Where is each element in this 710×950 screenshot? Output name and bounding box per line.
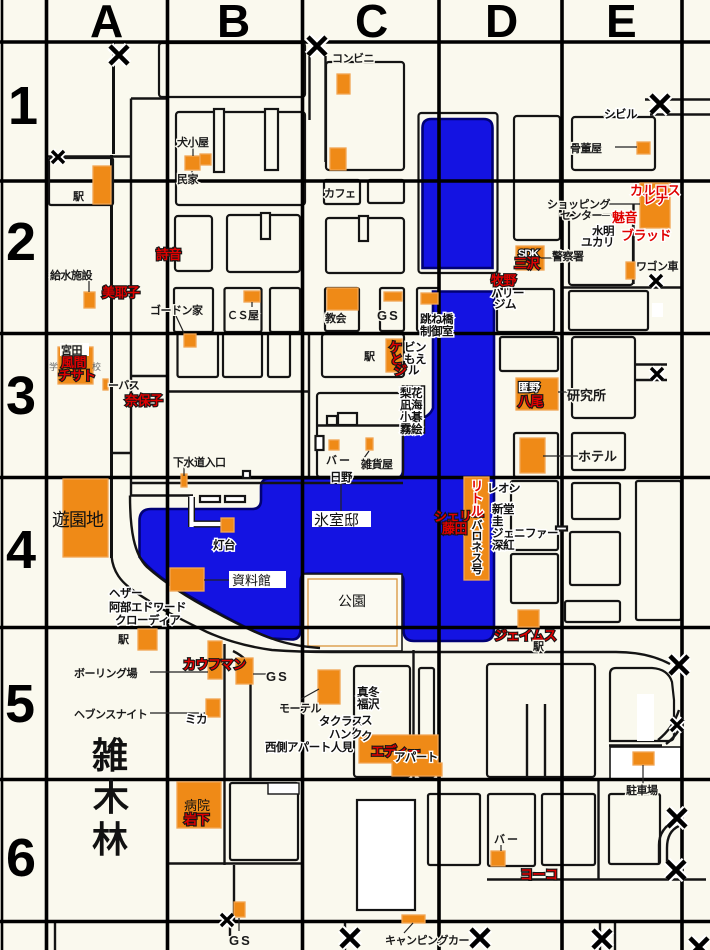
svg-text:雑: 雑 <box>91 735 128 776</box>
svg-text:ジェイムス: ジェイムス <box>494 628 557 643</box>
svg-text:研究所: 研究所 <box>567 388 606 403</box>
svg-text:GS: GS <box>266 669 289 684</box>
svg-text:小碁: 小碁 <box>399 410 423 424</box>
svg-text:日野: 日野 <box>330 471 353 484</box>
svg-text:藤田: 藤田 <box>442 521 468 536</box>
svg-text:教会: 教会 <box>324 311 347 325</box>
svg-text:ハンク: ハンク <box>329 728 362 741</box>
svg-text:凪海: 凪海 <box>400 398 423 412</box>
svg-text:病院: 病院 <box>184 798 210 813</box>
svg-text:深紅: 深紅 <box>492 538 515 552</box>
svg-text:木: 木 <box>93 777 129 818</box>
svg-text:遊園地: 遊園地 <box>52 510 104 530</box>
svg-text:雑貨屋: 雑貨屋 <box>360 457 393 471</box>
svg-text:制御室: 制御室 <box>420 324 454 338</box>
svg-text:八尾: 八尾 <box>517 394 544 409</box>
svg-text:駅: 駅 <box>363 350 375 363</box>
svg-text:林: 林 <box>92 819 128 860</box>
svg-text:灯台: 灯台 <box>213 538 235 552</box>
svg-text:詩音: 詩音 <box>156 247 182 262</box>
svg-text:バロネス号: バロネス号 <box>470 519 483 575</box>
svg-text:駅: 駅 <box>117 633 129 646</box>
svg-text:ホテル: ホテル <box>578 449 617 464</box>
svg-text:B: B <box>217 0 250 47</box>
svg-text:キャンピングカー: キャンピングカー <box>385 933 469 947</box>
svg-text:チサト: チサト <box>58 368 96 383</box>
svg-text:警察署: 警察署 <box>551 249 584 263</box>
svg-text:E: E <box>606 0 637 47</box>
svg-text:霧絵: 霧絵 <box>400 422 423 436</box>
svg-text:下水道入口: 下水道入口 <box>173 455 226 469</box>
svg-text:学: 学 <box>49 361 58 372</box>
svg-text:阿部エドワード: 阿部エドワード <box>109 600 186 614</box>
svg-text:GS: GS <box>377 308 400 323</box>
svg-text:ユカリ: ユカリ <box>581 236 614 249</box>
svg-text:アパート: アパート <box>394 751 438 764</box>
svg-text:骨董屋: 骨董屋 <box>570 141 602 155</box>
svg-text:ボーリング場: ボーリング場 <box>74 666 137 680</box>
svg-text:モーテル: モーテル <box>279 702 321 715</box>
svg-text:クローディア: クローディア <box>115 613 181 627</box>
svg-text:4: 4 <box>6 520 36 580</box>
svg-text:バ ー: バ ー <box>494 833 518 846</box>
svg-text:駅: 駅 <box>72 190 84 203</box>
svg-text:ＣＳ屋: ＣＳ屋 <box>227 309 259 322</box>
svg-text:1: 1 <box>8 76 38 136</box>
svg-text:氷室邸: 氷室邸 <box>314 512 359 529</box>
svg-text:ジェニファー: ジェニファー <box>492 527 558 540</box>
svg-text:6: 6 <box>6 828 36 888</box>
svg-text:ヘザー: ヘザー <box>109 587 142 600</box>
svg-text:レナ: レナ <box>643 192 669 207</box>
svg-text:ル: ル <box>408 364 420 377</box>
svg-text:圭: 圭 <box>492 514 504 528</box>
svg-text:3: 3 <box>6 366 36 426</box>
svg-text:センター─: センター─ <box>560 209 610 222</box>
svg-text:2: 2 <box>6 212 36 272</box>
svg-text:ーバス: ーバス <box>108 379 140 392</box>
svg-text:レオン: レオン <box>487 482 520 495</box>
svg-text:跳ね橋: 跳ね橋 <box>420 312 454 326</box>
svg-text:5: 5 <box>5 674 35 734</box>
svg-text:ク: ク <box>361 730 372 743</box>
svg-text:資料館: 資料館 <box>232 573 271 588</box>
svg-text:シビル: シビル <box>604 107 638 121</box>
svg-text:カウフマン: カウフマン <box>183 657 246 672</box>
svg-text:GS: GS <box>229 933 252 948</box>
svg-text:ヘブンスナイト: ヘブンスナイト <box>74 707 147 721</box>
svg-text:西側アパート人見: 西側アパート人見 <box>265 740 354 754</box>
svg-text:ミカ: ミカ <box>185 713 207 726</box>
svg-text:牧野: 牧野 <box>491 273 517 288</box>
svg-text:公園: 公園 <box>338 593 366 609</box>
svg-text:奈保子: 奈保子 <box>124 393 163 408</box>
svg-text:民家: 民家 <box>177 172 199 186</box>
svg-text:ジム: ジム <box>494 298 517 311</box>
svg-text:ブラッド: ブラッド <box>621 228 671 243</box>
svg-text:水明: 水明 <box>592 224 614 238</box>
svg-text:犬小屋: 犬小屋 <box>177 135 209 149</box>
svg-text:匿野: 匿野 <box>518 381 540 394</box>
svg-text:ショッピング: ショッピング <box>547 197 610 211</box>
svg-text:ワゴン車: ワゴン車 <box>636 259 678 273</box>
svg-text:バ ー: バ ー <box>326 454 350 467</box>
svg-text:ス: ス <box>361 715 372 727</box>
svg-text:ヨーコ: ヨーコ <box>520 867 558 882</box>
svg-text:C: C <box>355 0 388 47</box>
svg-text:タクラス: タクラス <box>319 714 363 728</box>
svg-text:コンビニ: コンビニ <box>332 51 374 65</box>
svg-text:給水施設: 給水施設 <box>50 268 93 282</box>
svg-text:美耶子: 美耶子 <box>102 285 140 300</box>
svg-text:岩下: 岩下 <box>183 812 210 827</box>
svg-text:梨花: 梨花 <box>399 386 423 400</box>
svg-text:新堂: 新堂 <box>492 502 514 516</box>
svg-text:D: D <box>485 0 518 47</box>
svg-text:A: A <box>90 0 123 47</box>
svg-text:駅: 駅 <box>532 640 544 653</box>
svg-text:三沢: 三沢 <box>514 256 541 271</box>
svg-text:真冬: 真冬 <box>357 685 380 699</box>
svg-text:魅音: 魅音 <box>612 210 638 225</box>
svg-text:福沢: 福沢 <box>356 697 380 711</box>
svg-text:カフェ: カフェ <box>324 187 356 200</box>
svg-text:ゴードン家: ゴードン家 <box>150 303 204 317</box>
svg-text:ビン: ビン <box>404 340 426 354</box>
svg-text:駐車場: 駐車場 <box>626 783 658 797</box>
